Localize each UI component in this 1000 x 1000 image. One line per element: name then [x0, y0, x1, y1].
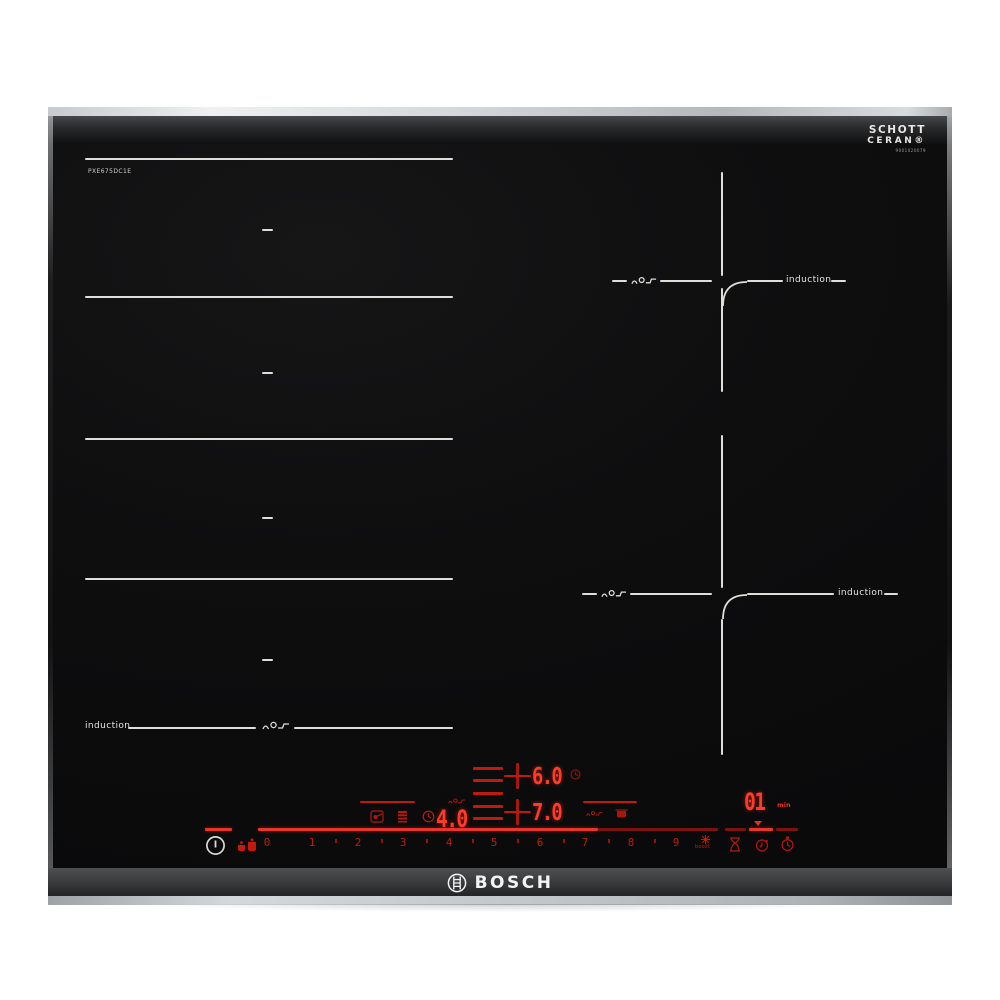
mini-clock-icon [570, 769, 581, 780]
slider-line-active[interactable] [258, 828, 598, 831]
slider-line-segment [205, 828, 232, 831]
slider-tick [563, 839, 565, 843]
zone-line [630, 593, 712, 595]
flex-segment [473, 767, 503, 770]
power-icon[interactable] [205, 835, 226, 856]
flex-zone-line [85, 578, 453, 580]
left-metal-edge [48, 116, 53, 868]
slider-level-9[interactable]: 9 [668, 836, 684, 849]
bottom-right-power-display: 7.0 [532, 800, 561, 826]
bosch-logo: BOSCH [48, 870, 952, 896]
zone-line [612, 280, 627, 282]
flex-zone-center-mark [262, 517, 273, 519]
flex-zone-center-mark [262, 229, 273, 231]
hourglass-icon[interactable] [729, 837, 741, 852]
slider-level-4[interactable]: 4 [441, 836, 457, 849]
zone-line [747, 593, 834, 595]
alarm-timer-icon[interactable] [755, 838, 769, 852]
slider-line-rest[interactable] [598, 828, 718, 831]
slider-tick [608, 839, 610, 843]
zone-line [582, 593, 597, 595]
slider-tick [426, 839, 428, 843]
flex-zone-line [294, 727, 453, 729]
slider-level-0[interactable]: 0 [259, 836, 275, 849]
flex-segment [473, 817, 503, 820]
zone-corner-arc [722, 281, 748, 307]
timer-display: 01 [744, 788, 764, 816]
top-bezel-band [48, 116, 952, 144]
clock-icon[interactable] [422, 810, 435, 823]
drop-shadow [58, 904, 942, 914]
slider-level-7[interactable]: 7 [577, 836, 593, 849]
pan-icon [262, 720, 290, 731]
flex-segment [473, 805, 503, 808]
mini-pan-icon[interactable] [586, 810, 603, 817]
zone-line [660, 280, 712, 282]
mini-pan-icon [448, 797, 466, 805]
timer-segment[interactable] [725, 828, 746, 831]
zone-corner-arc [722, 594, 748, 620]
zone-line [884, 593, 898, 595]
induction-label-top-right: induction [786, 275, 831, 285]
slider-tick [381, 839, 383, 843]
model-number: PXE675DC1E [88, 168, 131, 175]
right-metal-edge [947, 116, 952, 868]
flex-zone-center-mark [262, 372, 273, 374]
slider-tick [335, 839, 337, 843]
slider-level-1[interactable]: 1 [304, 836, 320, 849]
schott-text: SCHOTT [867, 124, 926, 136]
slider-tick [654, 839, 656, 843]
ceran-text: CERAN® [867, 136, 926, 146]
bosch-emblem-icon [447, 873, 467, 893]
zone-cross-vertical [721, 435, 723, 588]
pot-icon[interactable] [615, 808, 628, 818]
slider-level-3[interactable]: 3 [395, 836, 411, 849]
flex-segment [473, 792, 503, 795]
slider-tick [517, 839, 519, 843]
top-right-power-display: 6.0 [532, 764, 561, 790]
down-arrow-icon [754, 821, 762, 826]
slider-tick [472, 839, 474, 843]
zone-select-line [583, 801, 637, 803]
flex-zone-center-mark [262, 659, 273, 661]
induction-hob: SCHOTT CERAN® 9001020079 PXE675DC1E indu… [48, 107, 952, 905]
flex-zone-line [85, 438, 453, 440]
flex-power-display: 4.0 [436, 805, 467, 833]
zone-plus-cross [504, 811, 531, 813]
pan-icon [601, 588, 627, 599]
top-metal-edge [48, 107, 952, 116]
ceran-serial: 9001020079 [867, 148, 926, 153]
stopwatch-icon[interactable] [781, 836, 794, 852]
timer-unit-label: min [777, 801, 791, 809]
slider-level-8[interactable]: 8 [623, 836, 639, 849]
timer-segment[interactable] [776, 828, 798, 831]
function-line [360, 801, 415, 803]
slider-level-2[interactable]: 2 [350, 836, 366, 849]
zone-cross-vertical [721, 619, 723, 755]
boost-star-icon[interactable] [701, 835, 710, 844]
flex-zone-line [85, 158, 453, 160]
pan-icon [631, 275, 657, 286]
zone-line [831, 280, 846, 282]
zone-line [747, 280, 783, 282]
flex-zone-line [85, 296, 453, 298]
induction-label-flex: induction [85, 721, 130, 731]
pan-pair-icon[interactable] [236, 838, 259, 853]
flex-zone-line [128, 727, 256, 729]
product-photo: SCHOTT CERAN® 9001020079 PXE675DC1E indu… [0, 0, 1000, 1000]
zone-plus-cross [504, 775, 531, 777]
keep-warm-icon[interactable] [397, 810, 408, 823]
ceran-glass-surface [48, 116, 952, 868]
zone-cross-vertical [721, 172, 723, 276]
timer-segment-active[interactable] [749, 828, 773, 831]
slider-level-5[interactable]: 5 [486, 836, 502, 849]
induction-label-bottom-right: induction [838, 588, 883, 598]
bosch-wordmark: BOSCH [475, 873, 554, 893]
boost-label[interactable]: boost [695, 844, 710, 850]
slider-level-6[interactable]: 6 [532, 836, 548, 849]
schott-ceran-logo: SCHOTT CERAN® 9001020079 [867, 124, 926, 153]
flex-segment [473, 779, 503, 782]
fry-sensor-icon[interactable] [370, 810, 384, 823]
